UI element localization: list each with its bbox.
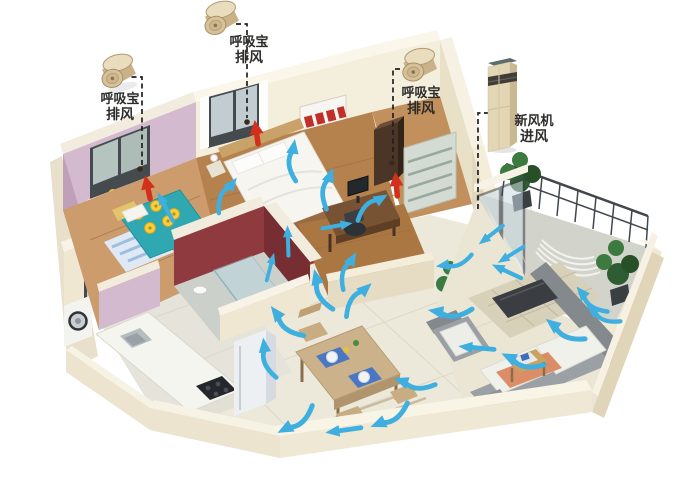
exhaust-top-label: 呼吸宝 bbox=[229, 34, 268, 50]
fresh-air-unit-icon bbox=[488, 58, 517, 153]
refrigerator bbox=[234, 330, 266, 416]
floorplan-scene: 呼吸宝 排风 呼吸宝 排风 呼吸宝 排风 新风机 进风 bbox=[0, 0, 700, 496]
exhaust-left-mode: 排风 bbox=[106, 106, 134, 123]
exhaust-right-label: 呼吸宝 bbox=[401, 85, 440, 101]
exhaust-top-mode: 排风 bbox=[235, 49, 263, 66]
exhaust-left-label: 呼吸宝 bbox=[100, 91, 139, 107]
ventilation-floorplan-diagram: 呼吸宝 排风 呼吸宝 排风 呼吸宝 排风 新风机 进风 bbox=[0, 0, 700, 496]
exhaust-right-mode: 排风 bbox=[407, 100, 435, 117]
fresh-air-label: 新风机 bbox=[514, 113, 553, 129]
fresh-air-mode: 进风 bbox=[520, 129, 548, 145]
